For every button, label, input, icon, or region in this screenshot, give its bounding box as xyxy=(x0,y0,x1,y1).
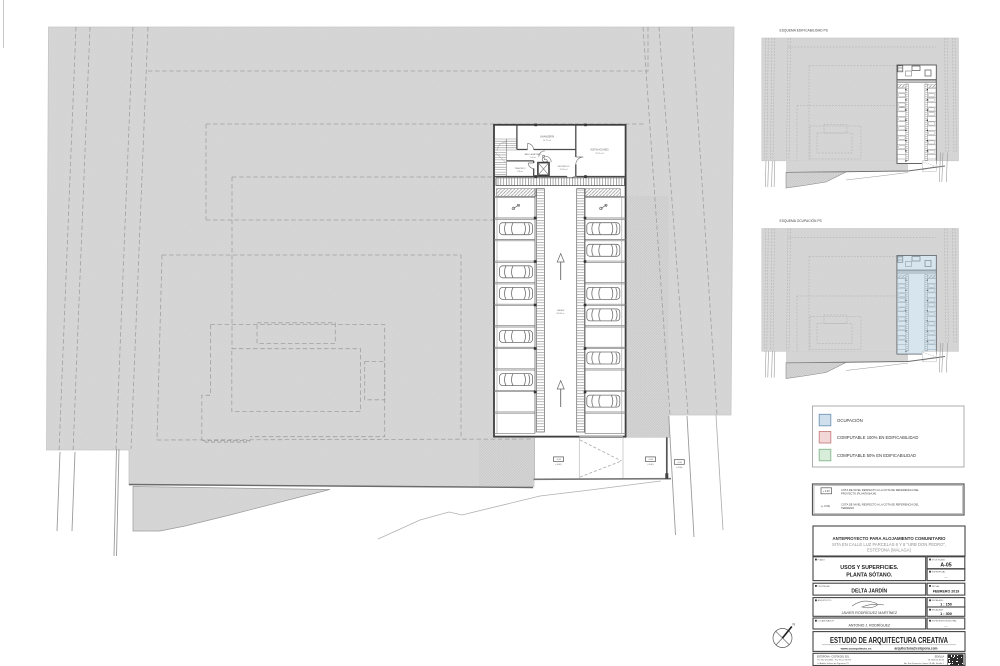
svg-text:-1.00: -1.00 xyxy=(677,462,683,464)
svg-text:SUPERFICIAL:: SUPERFICIAL: xyxy=(932,571,947,574)
svg-text:1 : 300: 1 : 300 xyxy=(940,612,952,616)
svg-text:32.55 m²: 32.55 m² xyxy=(595,152,604,155)
svg-text:ESQUEMA EDIFICABILIDAD PS: ESQUEMA EDIFICABILIDAD PS xyxy=(780,29,829,33)
svg-text:+ 0.00: + 0.00 xyxy=(823,490,830,493)
svg-text:JAVIER RODRÍGUEZ MARTÍNEZ: JAVIER RODRÍGUEZ MARTÍNEZ xyxy=(842,611,898,615)
svg-text:SITA EN CALLE LUZ PARCELAS 6 Y: SITA EN CALLE LUZ PARCELAS 6 Y 8 "URB DO… xyxy=(832,542,946,547)
svg-text:COTA DE NIVEL RESPECTO A LA CO: COTA DE NIVEL RESPECTO A LA COTA DE REFE… xyxy=(841,488,919,492)
svg-text:(-4.00): (-4.00) xyxy=(648,464,654,466)
svg-text:-1.00: -1.00 xyxy=(648,459,654,461)
svg-text:COMPUTABLE 100% EN EDIFICABILI: COMPUTABLE 100% EN EDIFICABILIDAD xyxy=(837,435,918,440)
svg-text:Tlf. 952 404 889 - Fax 951 2: Tlf. 952 404 889 - Fax 951 273 873 xyxy=(817,660,852,662)
svg-text:-1.00: -1.00 xyxy=(556,459,562,461)
svg-text:PROPIEDAD:: PROPIEDAD: xyxy=(818,585,831,588)
svg-text:GARAJE: GARAJE xyxy=(557,309,565,312)
svg-text:—: — xyxy=(945,624,948,628)
svg-text:Tlf. 954 64 30 66: Tlf. 954 64 30 66 xyxy=(928,660,945,662)
svg-text:—: — xyxy=(945,575,948,579)
svg-text:FECHA:: FECHA: xyxy=(932,585,940,588)
svg-text:FEBRERO 2019: FEBRERO 2019 xyxy=(933,589,960,593)
svg-text:LAVANDERÍA: LAVANDERÍA xyxy=(540,135,555,138)
svg-text:ARQUITECTO:: ARQUITECTO: xyxy=(818,599,833,602)
svg-text:OCUPACIÓN: OCUPACIÓN xyxy=(837,418,863,423)
svg-text:Av. San Francisco Javier 24-5A: Av. San Francisco Javier 24-5A, Sevilla … xyxy=(904,662,945,665)
svg-text:USOS Y SUPERFICIES.: USOS Y SUPERFICIES. xyxy=(840,565,899,571)
svg-text:PLANO:: PLANO: xyxy=(818,558,826,561)
svg-text:INSTALACIONES: INSTALACIONES xyxy=(590,149,609,152)
svg-text:ESQUEMA OCUPACIÓN PS: ESQUEMA OCUPACIÓN PS xyxy=(780,218,823,223)
svg-text:COLABORADOR:: COLABORADOR: xyxy=(818,620,835,623)
svg-text:ESTEPONA (MÁLAGA): ESTEPONA (MÁLAGA) xyxy=(867,548,912,553)
svg-text:ESTUDIO DE ARQUITECTURA CREATI: ESTUDIO DE ARQUITECTURA CREATIVA xyxy=(830,635,948,645)
svg-text:19.27 m²: 19.27 m² xyxy=(543,139,552,142)
svg-text:7.98 m²: 7.98 m² xyxy=(517,170,524,173)
svg-text:(-4.00): (-4.00) xyxy=(556,464,562,466)
svg-text:COMPUTABLE 50% EN EDIFICABILID: COMPUTABLE 50% EN EDIFICABILIDAD xyxy=(837,453,916,458)
svg-text:TERRENO: TERRENO xyxy=(841,506,854,510)
svg-text:N: N xyxy=(793,623,796,627)
svg-text:COTA DE NIVEL RESPECTO A LA CO: COTA DE NIVEL RESPECTO A LA COTA DE REFE… xyxy=(841,502,919,506)
svg-text:Nº DE PLANO:: Nº DE PLANO: xyxy=(932,558,946,561)
svg-text:PROYECTO (PLANTA BAJA): PROYECTO (PLANTA BAJA) xyxy=(841,492,876,496)
svg-text:ANTONIO J. RODRÍGUEZ: ANTONIO J. RODRÍGUEZ xyxy=(849,624,891,628)
svg-text:12.66 m²: 12.66 m² xyxy=(560,168,568,171)
svg-text:www.suarquitecto.es: www.suarquitecto.es xyxy=(840,646,872,650)
svg-text:TRASTERO: TRASTERO xyxy=(515,167,526,170)
svg-text:PLANTA SÓTANO.: PLANTA SÓTANO. xyxy=(846,570,893,578)
svg-text:A-05: A-05 xyxy=(940,563,951,569)
svg-text:(+ 0.00): (+ 0.00) xyxy=(821,504,830,508)
svg-text:VESTÍBULO: VESTÍBULO xyxy=(557,165,570,168)
svg-text:DELTA JARDÍN: DELTA JARDÍN xyxy=(851,587,887,595)
svg-text:C/ Adolfo Suárez de Figueroa 7: C/ Adolfo Suárez de Figueroa 72 xyxy=(817,662,850,665)
svg-text:1 : 150: 1 : 150 xyxy=(940,603,952,607)
svg-text:arquitectura@estepona.com: arquitectura@estepona.com xyxy=(895,646,938,650)
svg-text:EXPEDIENTE MUNICIPAL:: EXPEDIENTE MUNICIPAL: xyxy=(932,620,958,623)
svg-text:605.44 m²: 605.44 m² xyxy=(557,312,565,315)
svg-text:(-4.00): (-4.00) xyxy=(676,467,682,469)
svg-text:ESTEPONA - COSTA DEL SOL: ESTEPONA - COSTA DEL SOL xyxy=(817,655,850,658)
svg-text:5.20 m²: 5.20 m² xyxy=(530,156,537,159)
svg-text:SEVILLA: SEVILLA xyxy=(935,655,945,658)
